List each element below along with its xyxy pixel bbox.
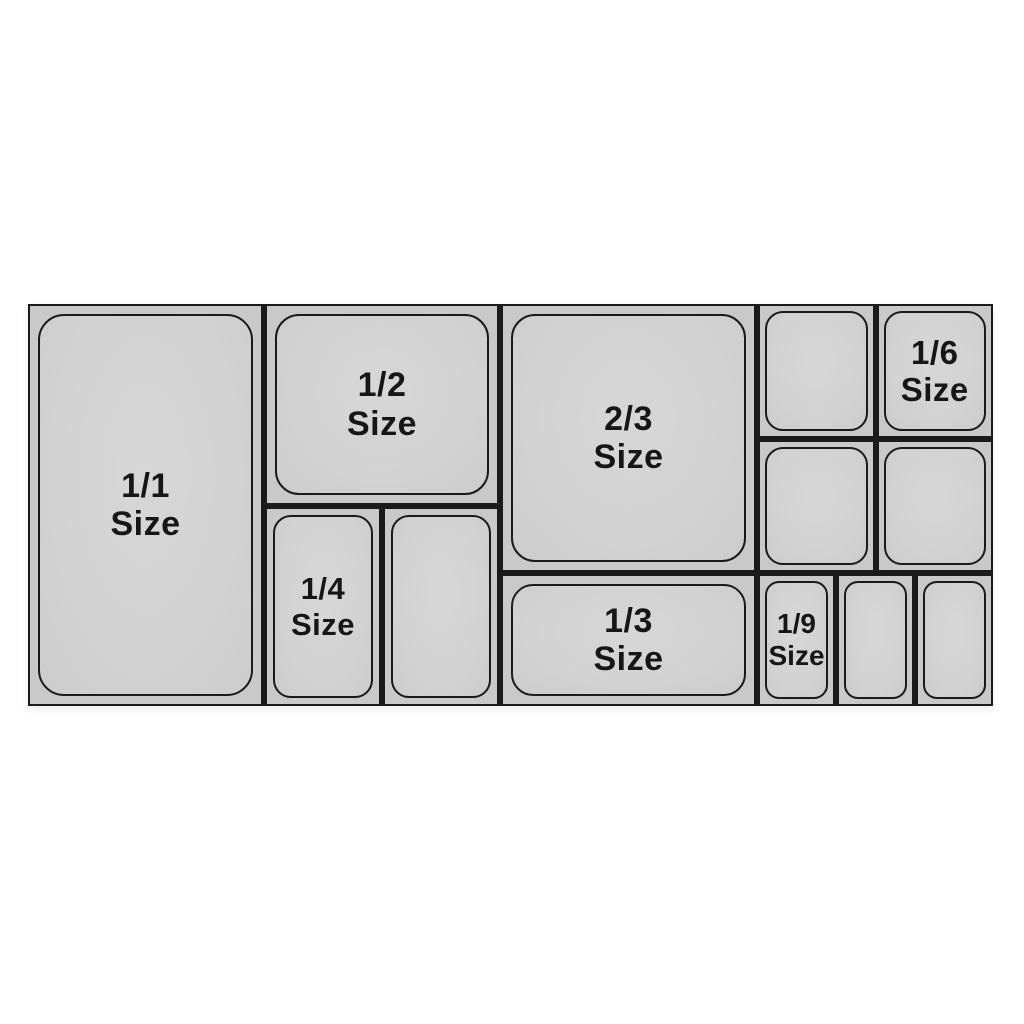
pan-cell-1-6-a <box>758 304 875 438</box>
pan-label-2-3: 2/3 Size <box>593 400 663 477</box>
pan-cell-1-3: 1/3 Size <box>501 574 756 706</box>
pan-tray-1-9 <box>923 581 986 699</box>
pan-label-fraction: 2/3 <box>593 400 663 438</box>
pan-cell-1-6-labeled: 1/6 Size <box>877 304 994 438</box>
quarter-row: 1/4 Size <box>265 507 499 706</box>
gastronorm-size-diagram: 1/1 Size 1/2 Size 1/4 Size <box>28 304 993 706</box>
pan-tray-1-6 <box>765 447 868 565</box>
pan-label-1-1: 1/1 Size <box>110 467 180 544</box>
pan-label-1-4: 1/4 Size <box>291 571 355 641</box>
pan-cell-2-3: 2/3 Size <box>501 304 756 572</box>
pan-label-fraction: 1/6 <box>901 334 969 371</box>
pan-tray-1-6 <box>765 311 868 431</box>
pan-label-word: Size <box>901 371 969 408</box>
pan-cell-1-6-c <box>758 440 875 572</box>
pan-label-word: Size <box>291 607 355 642</box>
pan-cell-1-4-labeled: 1/4 Size <box>265 507 381 706</box>
pan-label-word: Size <box>110 505 180 543</box>
pan-label-1-3: 1/3 Size <box>593 602 663 679</box>
pan-label-word: Size <box>347 405 417 443</box>
pan-label-1-6: 1/6 Size <box>901 334 969 409</box>
pan-cell-1-1: 1/1 Size <box>28 304 263 706</box>
pan-label-fraction: 1/2 <box>347 366 417 404</box>
column-twothirds-third: 2/3 Size 1/3 Size <box>501 304 756 706</box>
pan-cell-1-9-b <box>837 574 914 706</box>
pan-label-fraction: 1/4 <box>291 571 355 606</box>
pan-cell-1-6-d <box>877 440 994 572</box>
pan-label-word: Size <box>593 640 663 678</box>
sixth-row-1: 1/6 Size <box>758 304 993 438</box>
column-half-quarter: 1/2 Size 1/4 Size <box>265 304 499 706</box>
pan-cell-1-4-unlabeled <box>383 507 499 706</box>
page-canvas: 1/1 Size 1/2 Size 1/4 Size <box>0 0 1024 1024</box>
pan-label-1-9: 1/9 Size <box>768 608 824 671</box>
ninth-row: 1/9 Size <box>758 574 993 706</box>
pan-label-fraction: 1/9 <box>768 608 824 640</box>
column-sixth-ninth: 1/6 Size 1/9 Size <box>758 304 993 706</box>
pan-tray-1-6 <box>884 447 987 565</box>
pan-label-word: Size <box>593 438 663 476</box>
pan-cell-1-9-labeled: 1/9 Size <box>758 574 835 706</box>
pan-tray-1-9 <box>844 581 907 699</box>
pan-cell-1-9-c <box>916 574 993 706</box>
pan-label-word: Size <box>768 640 824 672</box>
pan-label-fraction: 1/1 <box>110 467 180 505</box>
pan-cell-1-2: 1/2 Size <box>265 304 499 505</box>
sixth-row-2 <box>758 440 993 572</box>
pan-label-fraction: 1/3 <box>593 602 663 640</box>
pan-label-1-2: 1/2 Size <box>347 366 417 443</box>
pan-tray-1-4 <box>391 515 491 698</box>
